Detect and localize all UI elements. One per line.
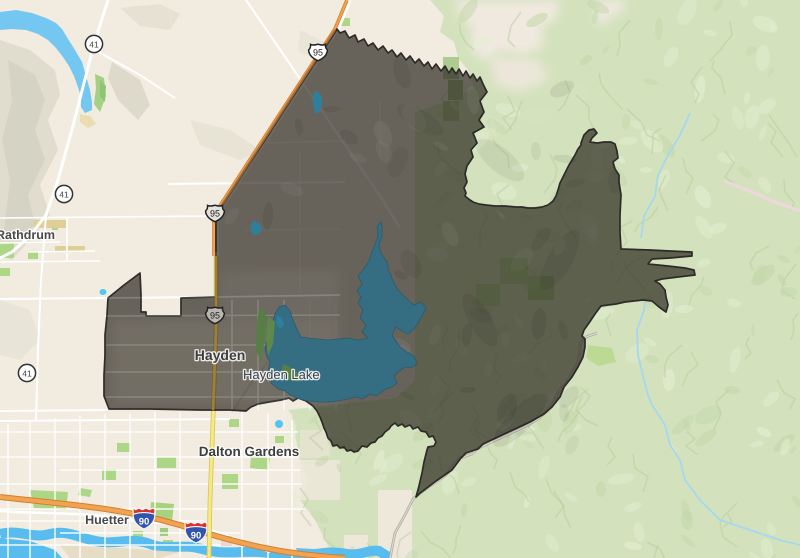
svg-text:41: 41 (89, 39, 99, 49)
svg-text:95: 95 (210, 311, 220, 321)
svg-text:41: 41 (22, 368, 32, 378)
svg-text:95: 95 (210, 209, 220, 219)
svg-text:41: 41 (59, 189, 69, 199)
svg-text:90: 90 (191, 530, 202, 541)
svg-text:Hayden Lake: Hayden Lake (243, 367, 320, 382)
svg-text:95: 95 (313, 48, 323, 58)
svg-text:Hayden: Hayden (195, 347, 246, 363)
svg-text:Huetter: Huetter (85, 513, 129, 527)
svg-text:90: 90 (139, 516, 150, 527)
svg-text:Rathdrum: Rathdrum (0, 228, 55, 242)
svg-text:Dalton Gardens: Dalton Gardens (199, 444, 300, 459)
